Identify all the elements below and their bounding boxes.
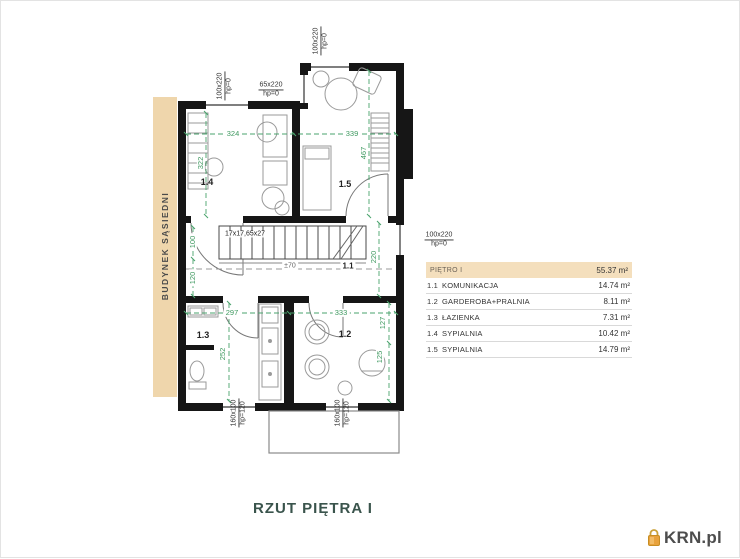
window-sill: hp=0 (322, 33, 329, 49)
area-legend: PIĘTRO I 55.37 m² 1.1KOMUNIKACJA 14.74 m… (426, 262, 632, 358)
window-size: 160x100 (230, 399, 239, 428)
door-sill: hp=0 (431, 241, 447, 248)
dim-room13-width: 297 (224, 309, 241, 317)
dim-hall-lower: 120 (189, 270, 197, 287)
room-label-1-4: 1.4 (201, 177, 214, 187)
legend-room-no: 1.1 (427, 281, 442, 290)
legend-room-name: ŁAZIENKA (442, 313, 480, 322)
legend-room-no: 1.2 (427, 297, 442, 306)
window-size: 100x220 (216, 72, 225, 101)
legend-room-no: 1.3 (427, 313, 442, 322)
dim-room12-width: 333 (333, 309, 350, 317)
legend-room-name: GARDEROBA+PRALNIA (442, 297, 530, 306)
legend-room-name: KOMUNIKACJA (442, 281, 498, 290)
dim-room12-depth-upper: 127 (379, 315, 387, 332)
window-sill: hp=120 (344, 401, 351, 425)
window-sill: hp=0 (226, 78, 233, 94)
room-label-1-2: 1.2 (339, 329, 352, 339)
legend-header: PIĘTRO I 55.37 m² (426, 262, 632, 278)
room-label-1-1: 1.1 (340, 262, 355, 271)
dim-room15-width: 339 (344, 130, 361, 138)
legend-room-name: SYPIALNIA (442, 345, 483, 354)
legend-room-area: 10.42 m² (598, 329, 630, 338)
legend-room-no: 1.5 (427, 345, 442, 354)
window-size: 160x100 (334, 399, 343, 428)
dim-room14-depth: 322 (197, 155, 205, 172)
legend-room-area: 7.31 m² (603, 313, 630, 322)
legend-row: 1.3ŁAZIENKA 7.31 m² (426, 310, 632, 326)
dim-room15-depth: 467 (360, 145, 368, 162)
page-title: RZUT PIĘTRA I (253, 500, 373, 517)
stairs-spec-label: 17x17,65x27 (223, 231, 267, 238)
window-label-top-right: 100x220 hp=0 (312, 27, 329, 56)
legend-room-area: 14.74 m² (598, 281, 630, 290)
window-label-top-left: 100x220 hp=0 (216, 72, 233, 101)
door-label-right: 100x220 hp=0 (425, 231, 454, 248)
dim-room13-depth: 252 (219, 346, 227, 363)
legend-room-no: 1.4 (427, 329, 442, 338)
dim-room14-width: 324 (225, 130, 242, 138)
room-label-1-3: 1.3 (197, 330, 210, 340)
room-label-1-5: 1.5 (339, 179, 352, 189)
window-label-bottom-right: 160x100 hp=120 (334, 399, 351, 428)
door-size: 100x220 (425, 231, 454, 240)
krn-logo: KRN.pl (646, 528, 722, 547)
dim-room12-depth-lower: 125 (376, 349, 384, 366)
window-size: 100x220 (312, 27, 321, 56)
dim-hall-upper: 100 (189, 234, 197, 251)
neighbor-building-label: BUDYNEK SĄSIEDNI (160, 192, 170, 301)
dim-hall-right: 220 (370, 249, 378, 266)
krn-logo-text: KRN.pl (664, 529, 722, 546)
legend-row: 1.4SYPIALNIA 10.42 m² (426, 326, 632, 342)
legend-room-area: 8.11 m² (603, 297, 630, 306)
level-mark-label: ±70 (282, 263, 298, 270)
window-sill: hp=0 (263, 91, 279, 98)
legend-room-area: 14.79 m² (598, 345, 630, 354)
legend-header-area: 55.37 m² (596, 266, 628, 275)
window-size: 65x220 (259, 81, 284, 90)
window-sill: hp=120 (240, 401, 247, 425)
window-label-top-small: 65x220 hp=0 (259, 81, 284, 98)
legend-row: 1.2GARDEROBA+PRALNIA 8.11 m² (426, 294, 632, 310)
floorplan-page: { "title": "RZUT PIĘTRA I", "watermark":… (0, 0, 740, 558)
padlock-icon (646, 528, 662, 547)
legend-row: 1.1KOMUNIKACJA 14.74 m² (426, 278, 632, 294)
legend-header-label: PIĘTRO I (430, 267, 462, 274)
window-label-bottom-left: 160x100 hp=120 (230, 399, 247, 428)
legend-row: 1.5SYPIALNIA 14.79 m² (426, 342, 632, 358)
legend-room-name: SYPIALNIA (442, 329, 483, 338)
